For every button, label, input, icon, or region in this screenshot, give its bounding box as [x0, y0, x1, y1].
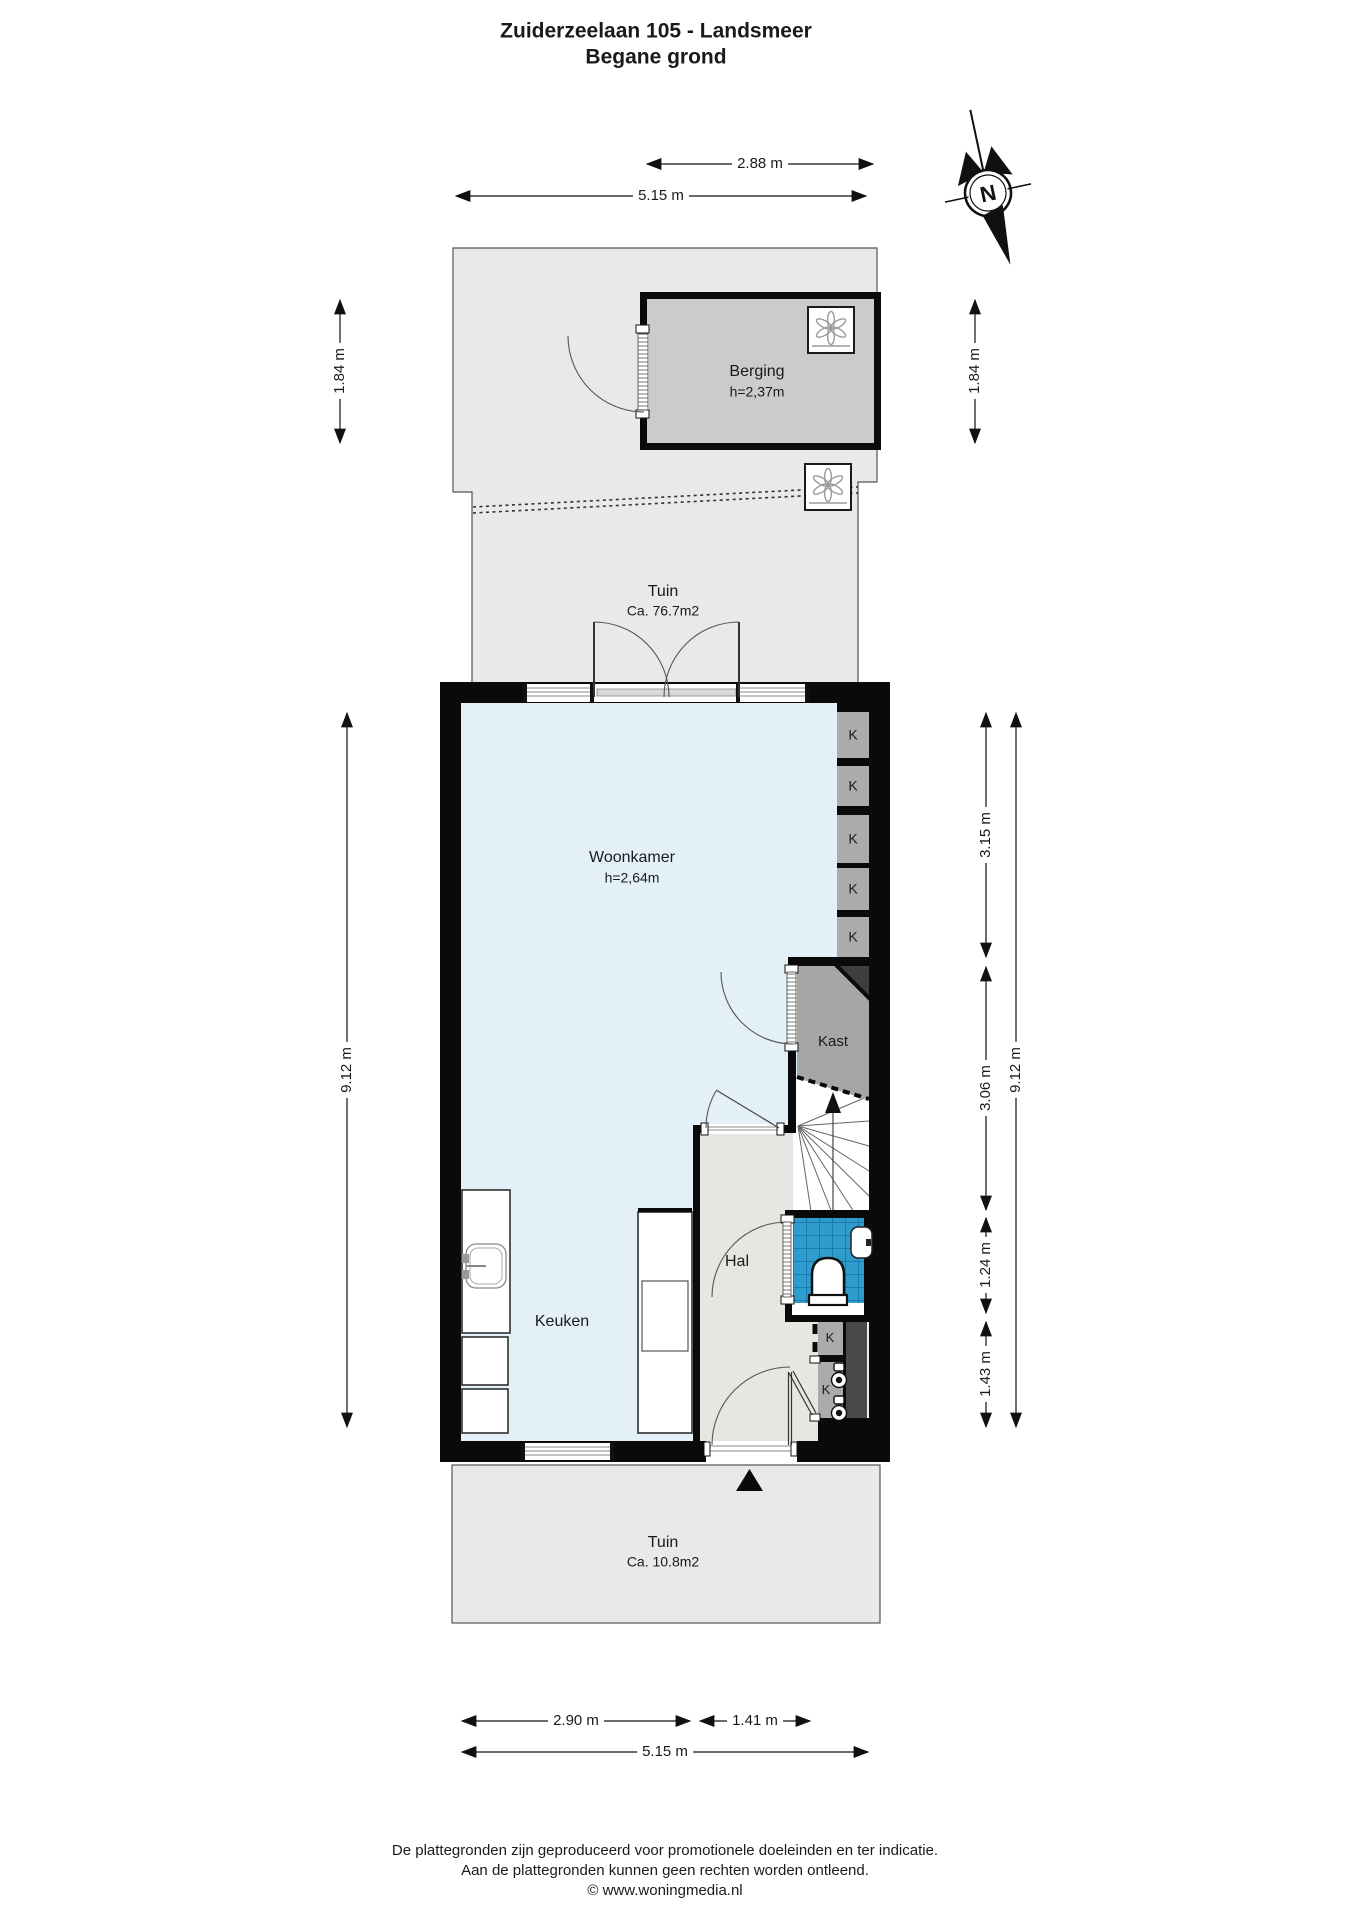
dim-top-288: 2.88 m — [732, 156, 788, 173]
tuin-top-label: Tuin — [648, 583, 679, 601]
toilet-cistern — [809, 1295, 847, 1305]
kast-label: Kast — [818, 1034, 848, 1051]
dim-bottom-515: 5.15 m — [637, 1744, 693, 1761]
toilet-bowl — [812, 1258, 844, 1297]
compass-north-icon: N — [927, 101, 1046, 276]
k-cabinet-label: K — [848, 778, 857, 793]
door-post — [777, 1123, 784, 1135]
tuin-top-area-label: Ca. 76.7m2 — [627, 603, 699, 618]
door-post — [810, 1356, 820, 1363]
hal-left-wall — [693, 1125, 700, 1441]
door-post — [636, 410, 649, 418]
kitchen-sink — [462, 1244, 506, 1288]
plan-subtitle: Begane grond — [585, 45, 726, 68]
plan-title: Zuiderzeelaan 105 - Landsmeer — [500, 19, 812, 42]
berging-label: Berging — [729, 363, 784, 381]
woonkamer-height-label: h=2,64m — [605, 870, 660, 885]
dim-right-184: 1.84 m — [967, 343, 984, 399]
footer-copyright: © www.woningmedia.nl — [587, 1883, 742, 1900]
hal-label: Hal — [725, 1253, 749, 1271]
k-cabinet-label: K — [848, 727, 857, 742]
k-closet-label: K — [826, 1331, 835, 1345]
k-cabinet-label: K — [848, 881, 857, 896]
tuin-bottom-area-label: Ca. 10.8m2 — [627, 1554, 699, 1569]
dim-right-315: 3.15 m — [978, 807, 995, 863]
counter-left-low — [462, 1389, 508, 1433]
dim-right-912: 9.12 m — [1008, 1042, 1025, 1098]
k-closet-label: K — [822, 1383, 831, 1397]
ventilation-unit-icon — [808, 307, 854, 353]
door-post — [704, 1442, 710, 1456]
dim-right-124: 1.24 m — [978, 1237, 995, 1293]
keuken-label: Keuken — [535, 1313, 589, 1331]
k-cabinet-label: K — [848, 929, 857, 944]
dim-left-912: 9.12 m — [339, 1042, 356, 1098]
k-cabinet-label: K — [848, 831, 857, 846]
ventilation-unit-icon — [805, 464, 851, 510]
kast-door-leaf — [787, 972, 796, 1044]
door-post — [701, 1123, 708, 1135]
dim-bottom-141: 1.41 m — [727, 1713, 783, 1730]
footer-disclaimer-2: Aan de plattegronden kunnen geen rechten… — [461, 1863, 869, 1880]
dim-bottom-290: 2.90 m — [548, 1713, 604, 1730]
toilet-door-leaf — [783, 1222, 791, 1297]
window — [738, 684, 809, 702]
berging-door-leaf — [638, 334, 648, 410]
kast-top-wall — [788, 957, 870, 966]
floorplan-page: N Zuiderzeelaan 105 - Landsmeer Begane g… — [0, 0, 1358, 1920]
door-post — [636, 325, 649, 333]
dim-top-515: 5.15 m — [633, 188, 689, 205]
floorplan-drawing: N — [0, 0, 1358, 1920]
tuin-bottom-label: Tuin — [648, 1534, 679, 1552]
counter-left-mid — [462, 1337, 508, 1385]
dim-right-306: 3.06 m — [978, 1060, 995, 1116]
dim-left-184: 1.84 m — [332, 343, 349, 399]
dim-right-143: 1.43 m — [978, 1346, 995, 1402]
counter-right-tall — [638, 1212, 692, 1433]
window — [525, 684, 594, 702]
shaft — [846, 1322, 867, 1418]
berging-height-label: h=2,37m — [730, 384, 785, 399]
woonkamer-label: Woonkamer — [589, 849, 675, 867]
footer-disclaimer-1: De plattegronden zijn geproduceerd voor … — [392, 1843, 938, 1860]
